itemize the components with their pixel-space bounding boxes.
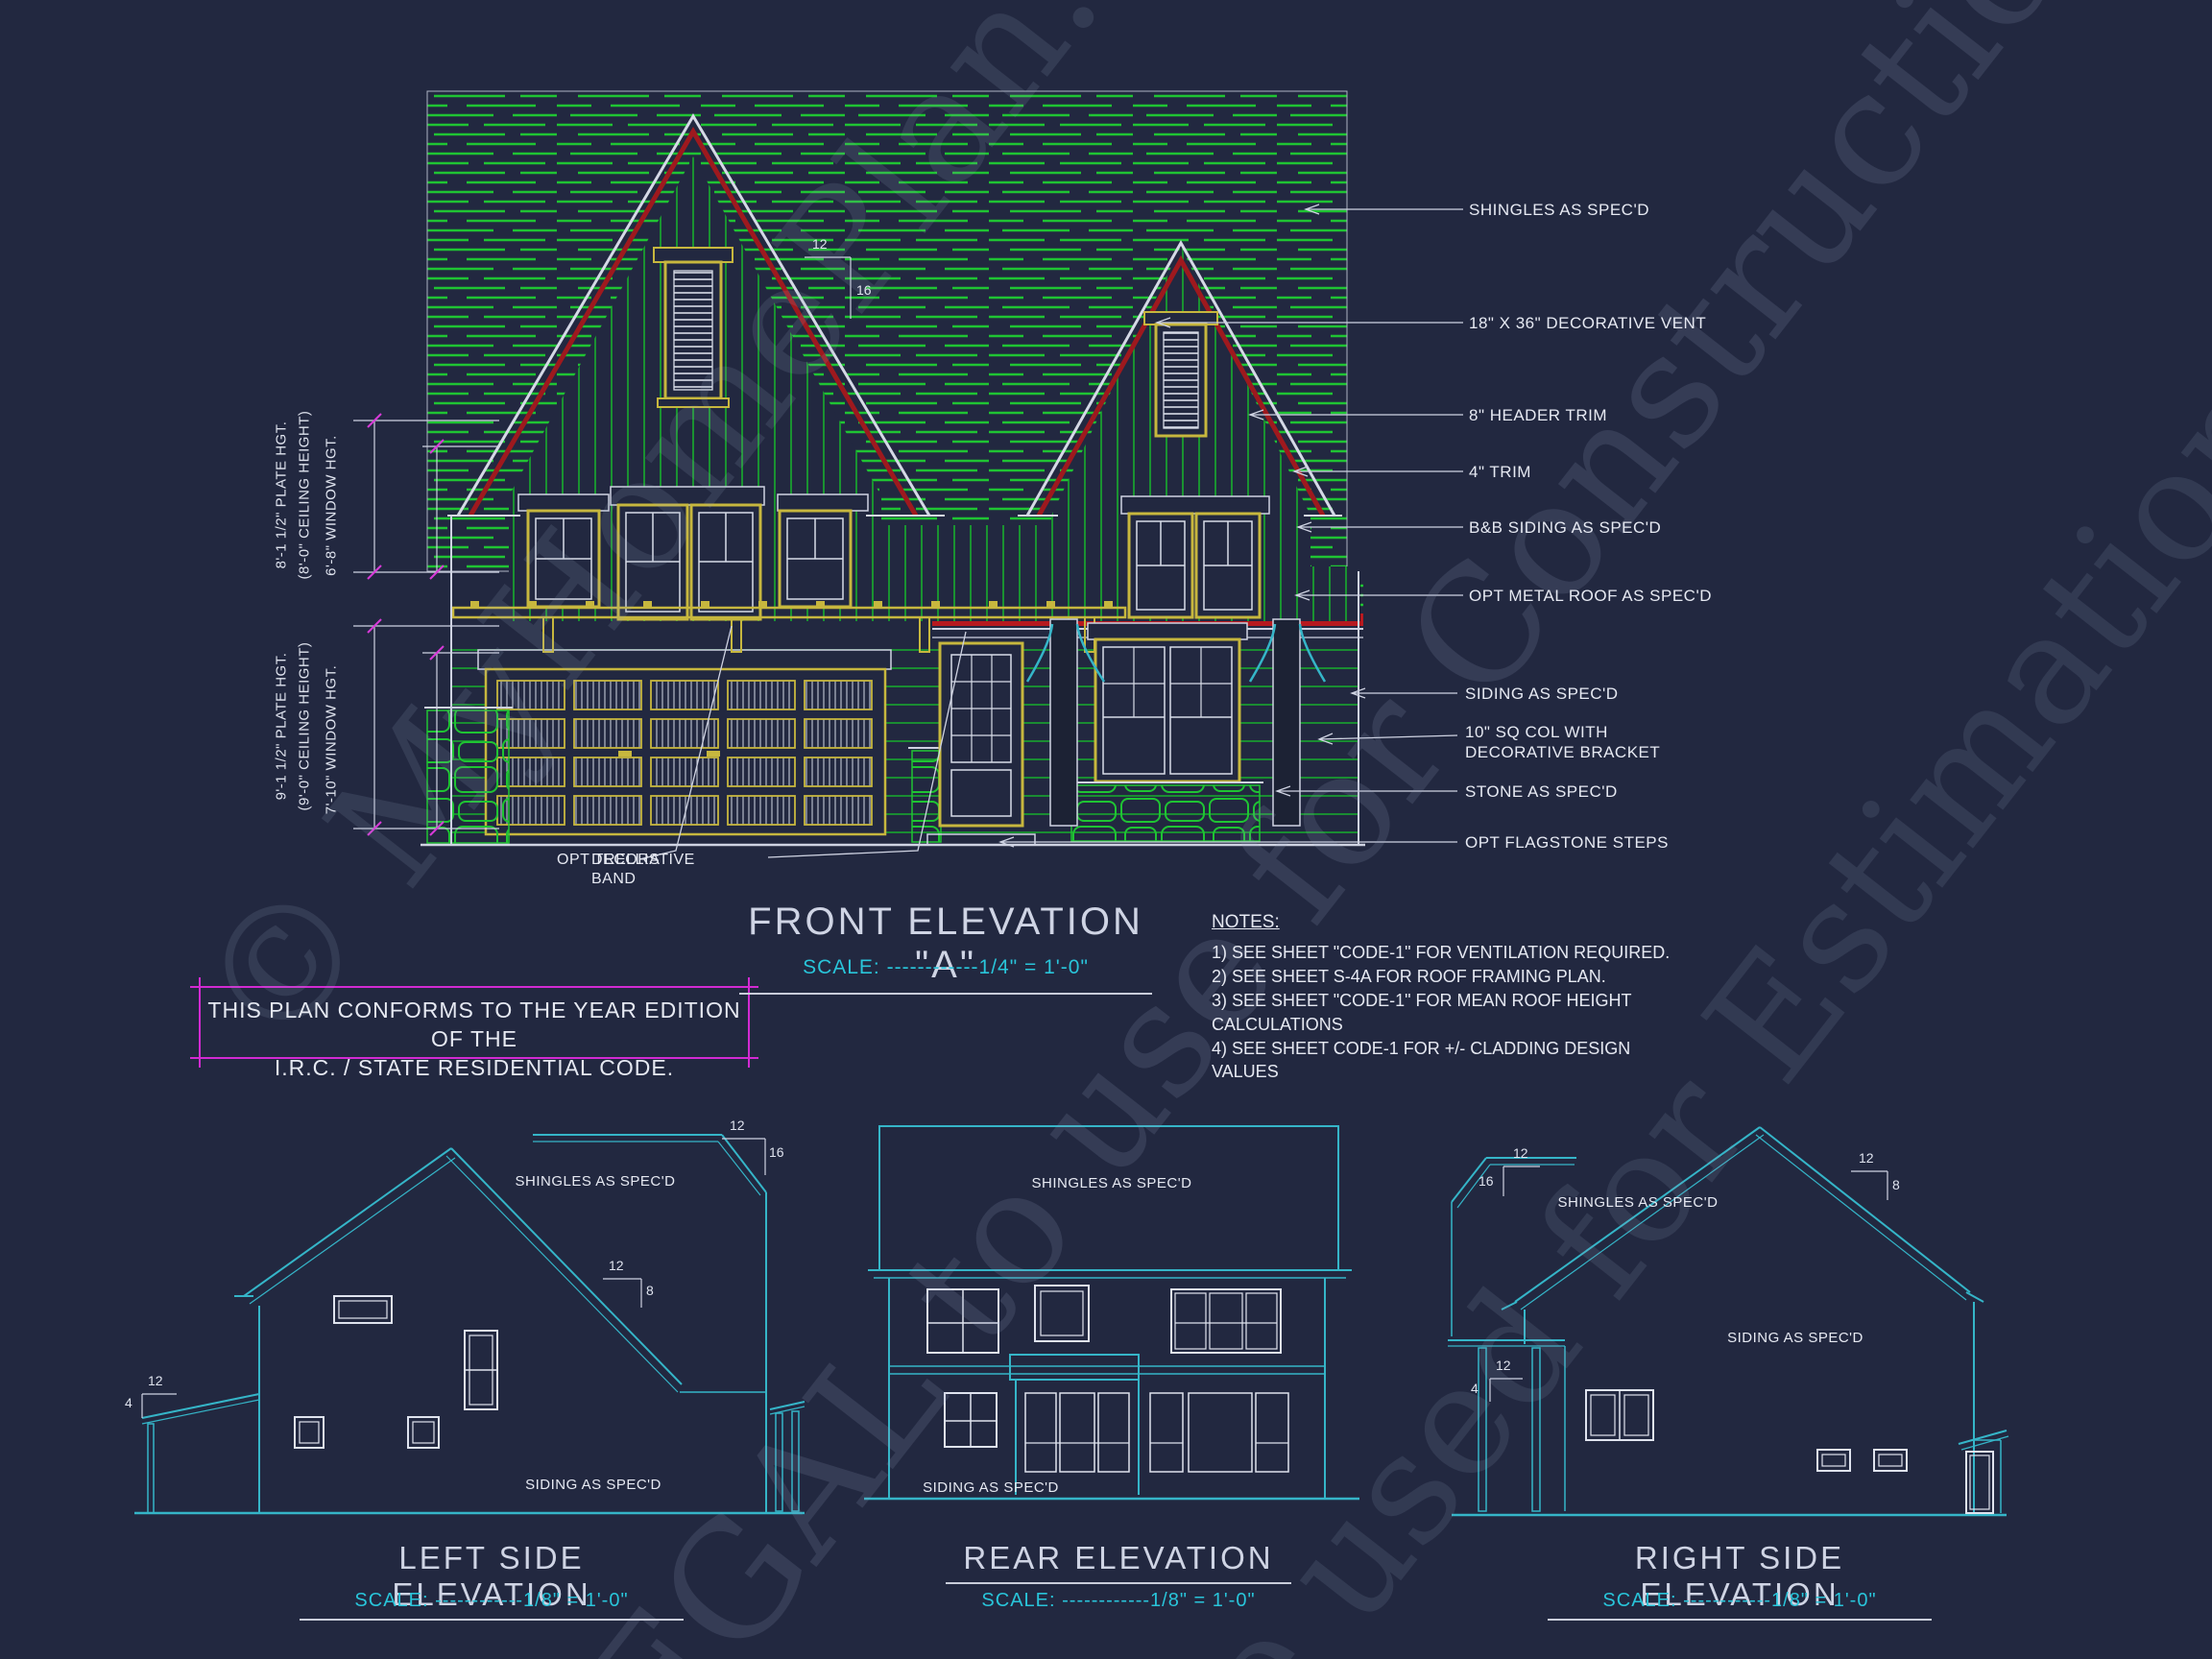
ls-slope-run-2: 12 (609, 1258, 624, 1273)
notes-heading: NOTES: (1212, 910, 1692, 935)
callout-bb-siding: B&B SIDING AS SPEC'D (1469, 517, 1661, 538)
callout-header-trim: 8" HEADER TRIM (1469, 405, 1607, 425)
rs-siding-label: SIDING AS SPEC'D (1690, 1330, 1901, 1348)
rs-slope-run-1: 12 (1513, 1145, 1528, 1161)
callout-shingles: SHINGLES AS SPEC'D (1469, 200, 1649, 220)
rs-shingles-label: SHINGLES AS SPEC'D (1532, 1194, 1743, 1213)
left-side-elevation-scale: SCALE: ------------1/8" = 1'-0" (300, 1590, 684, 1612)
rear-elevation-scale: SCALE: ------------1/8" = 1'-0" (946, 1590, 1291, 1612)
dim-ceiling-lower: (9'-0" CEILING HEIGHT) (297, 616, 313, 837)
rs-slope-run-2: 12 (1859, 1150, 1874, 1166)
dim-plate-hgt-upper: 8'-1 1/2" PLATE HGT. (274, 385, 290, 606)
note-item: 4) SEE SHEET CODE-1 FOR +/- CLADDING DES… (1212, 1037, 1692, 1085)
callout-trim: 4" TRIM (1469, 462, 1531, 482)
callout-metal-roof: OPT METAL ROOF AS SPEC'D (1469, 586, 1712, 606)
notes-block: NOTES: 1) SEE SHEET "CODE-1" FOR VENTILA… (1212, 910, 1692, 1084)
note-item: 2) SEE SHEET S-4A FOR ROOF FRAMING PLAN. (1212, 965, 1692, 989)
dim-plate-hgt-lower: 9'-1 1/2" PLATE HGT. (274, 616, 290, 837)
code-box-line2: I.R.C. / STATE RESIDENTIAL CODE. (205, 1054, 743, 1083)
dim-window-hgt-upper: 6'-8" WINDOW HGT. (324, 396, 340, 616)
ls-slope-rise-2: 8 (646, 1283, 654, 1298)
note-item: 3) SEE SHEET "CODE-1" FOR MEAN ROOF HEIG… (1212, 989, 1692, 1037)
rs-slope-rise-1: 16 (1479, 1173, 1494, 1189)
ls-slope-run-3: 12 (148, 1373, 163, 1388)
dim-ceiling-upper: (8'-0" CEILING HEIGHT) (297, 385, 313, 606)
blueprint-sheet: © MyHomePlan.com ILLEGAL to use for Cons… (0, 0, 2212, 1659)
dim-window-hgt-lower: 7'-10" WINDOW HGT. (324, 630, 340, 851)
re-siding-label: SIDING AS SPEC'D (885, 1479, 1096, 1498)
code-conformance-box: THIS PLAN CONFORMS TO THE YEAR EDITION O… (205, 997, 743, 1083)
callout-sq-col: 10" SQ COL WITH DECORATIVE BRACKET (1465, 722, 1660, 763)
front-slope-run: 12 (812, 236, 828, 252)
rs-slope-run-3: 12 (1496, 1358, 1511, 1373)
ls-shingles-label: SHINGLES AS SPEC'D (490, 1173, 701, 1191)
callout-siding: SIDING AS SPEC'D (1465, 684, 1619, 704)
ls-siding-label: SIDING AS SPEC'D (488, 1477, 699, 1495)
callout-decorative-vent: 18" X 36" DECORATIVE VENT (1469, 313, 1706, 333)
callout-flagstone: OPT FLAGSTONE STEPS (1465, 832, 1669, 853)
front-slope-rise: 16 (856, 282, 872, 298)
right-side-elevation-scale: SCALE: ------------1/8" = 1'-0" (1548, 1590, 1932, 1612)
rear-elevation-title: REAR ELEVATION (946, 1540, 1291, 1584)
callout-leaders (639, 204, 1463, 859)
dimension-ticks (368, 414, 444, 835)
front-elevation-scale: SCALE: ------------1/4" = 1'-0" (739, 956, 1152, 979)
front-elevation-title: FRONT ELEVATION "A" (739, 901, 1152, 995)
re-shingles-label: SHINGLES AS SPEC'D (1006, 1175, 1217, 1193)
ls-slope-run-1: 12 (730, 1118, 745, 1133)
ls-slope-rise-1: 16 (769, 1144, 784, 1160)
callout-stone: STONE AS SPEC'D (1465, 781, 1618, 802)
code-box-line1: THIS PLAN CONFORMS TO THE YEAR EDITION O… (205, 997, 743, 1054)
ls-slope-rise-3: 4 (125, 1395, 132, 1410)
rs-slope-rise-3: 4 (1471, 1381, 1479, 1396)
note-item: 1) SEE SHEET "CODE-1" FOR VENTILATION RE… (1212, 941, 1692, 965)
label-decorative-band: DECORATIVE BAND (591, 851, 705, 889)
rs-slope-rise-2: 8 (1892, 1177, 1900, 1192)
